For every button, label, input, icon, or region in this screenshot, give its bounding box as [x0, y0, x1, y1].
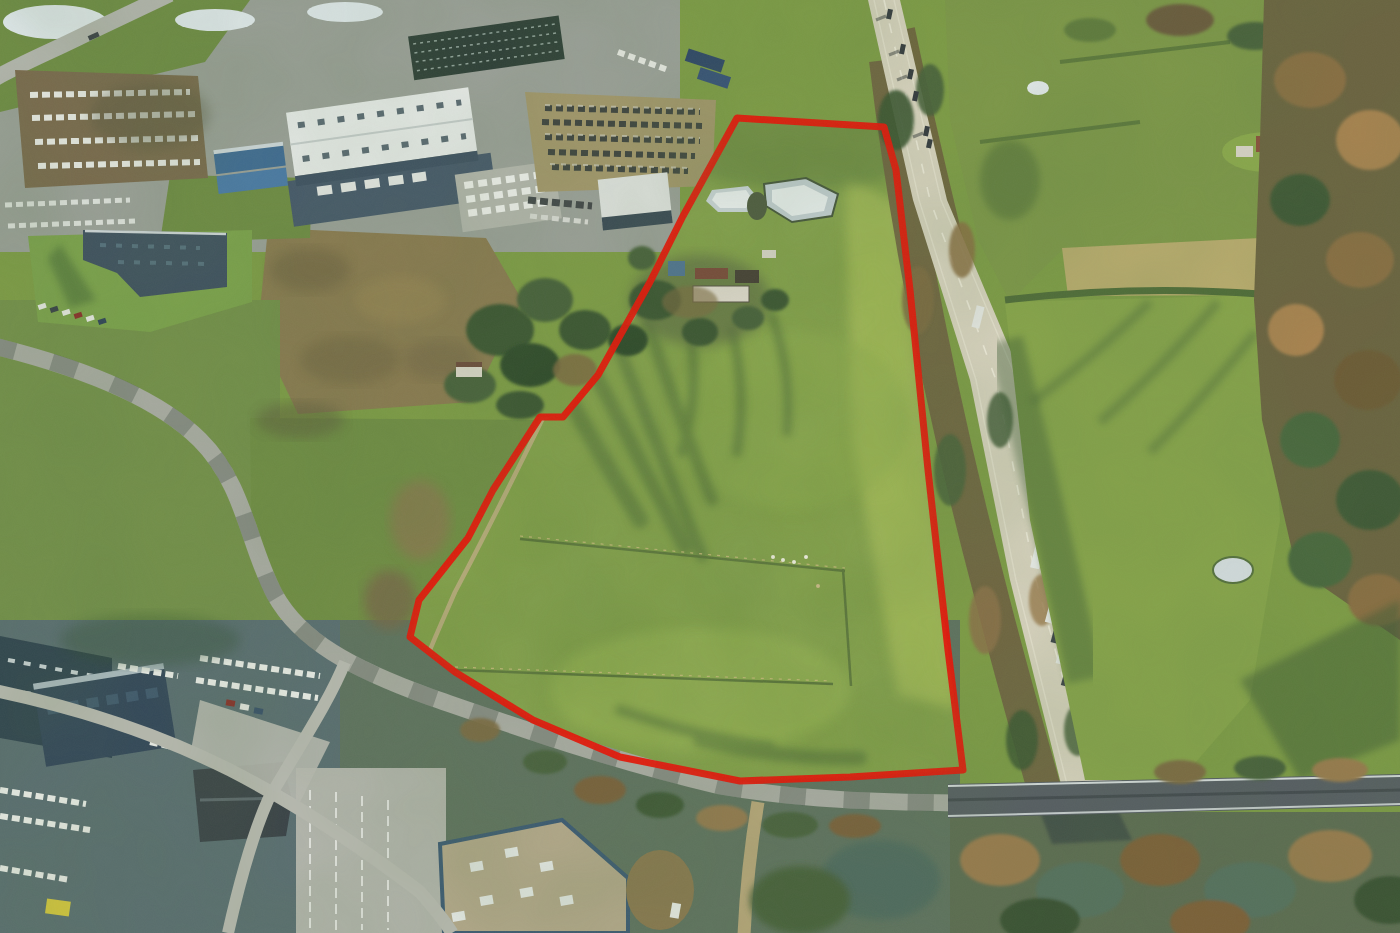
aerial-photo: [0, 0, 1400, 933]
photo-grain: [0, 0, 1400, 933]
